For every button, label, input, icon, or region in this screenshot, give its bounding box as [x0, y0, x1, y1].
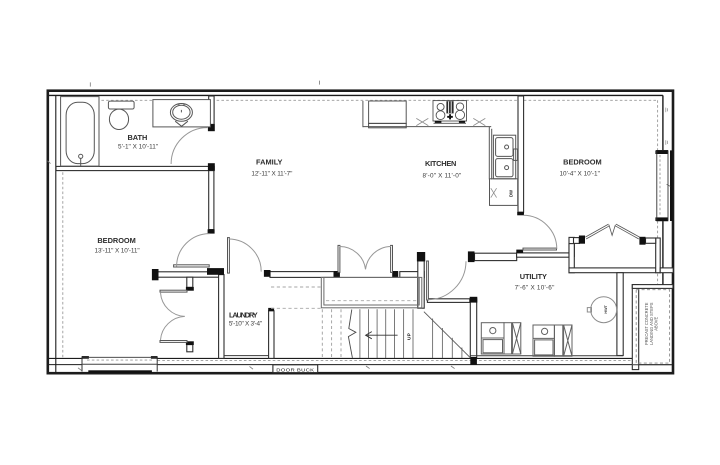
svg-text:BATH: BATH [127, 133, 147, 142]
svg-text:BEDROOM: BEDROOM [563, 158, 602, 167]
svg-text:7'-6" X 10'-6": 7'-6" X 10'-6" [515, 284, 555, 291]
svg-text:13'-11" X 10'-11": 13'-11" X 10'-11" [95, 247, 140, 254]
svg-text:DOOR BUCK: DOOR BUCK [276, 367, 314, 372]
svg-text:KITCHEN: KITCHEN [425, 159, 457, 168]
svg-text:FAMILY: FAMILY [256, 158, 283, 167]
svg-text:12'-11" X 11'-7": 12'-11" X 11'-7" [251, 170, 292, 177]
svg-text:UTILITY: UTILITY [520, 272, 548, 281]
svg-text:BEDROOM: BEDROOM [97, 236, 136, 245]
svg-text:5'-1" X 10'-11": 5'-1" X 10'-11" [118, 143, 158, 150]
svg-text:LAUNDRY: LAUNDRY [229, 310, 258, 319]
svg-text:8'-0" X 11'-0": 8'-0" X 11'-0" [423, 172, 462, 179]
svg-text:DW: DW [509, 190, 514, 197]
svg-text:5'-10" X 3'-4": 5'-10" X 3'-4" [229, 321, 262, 328]
svg-text:HWT: HWT [604, 304, 608, 313]
svg-text:ABOVE: ABOVE [653, 317, 658, 331]
svg-text:10'-4" X 10'-1": 10'-4" X 10'-1" [559, 171, 600, 178]
svg-text:UP: UP [407, 332, 413, 340]
